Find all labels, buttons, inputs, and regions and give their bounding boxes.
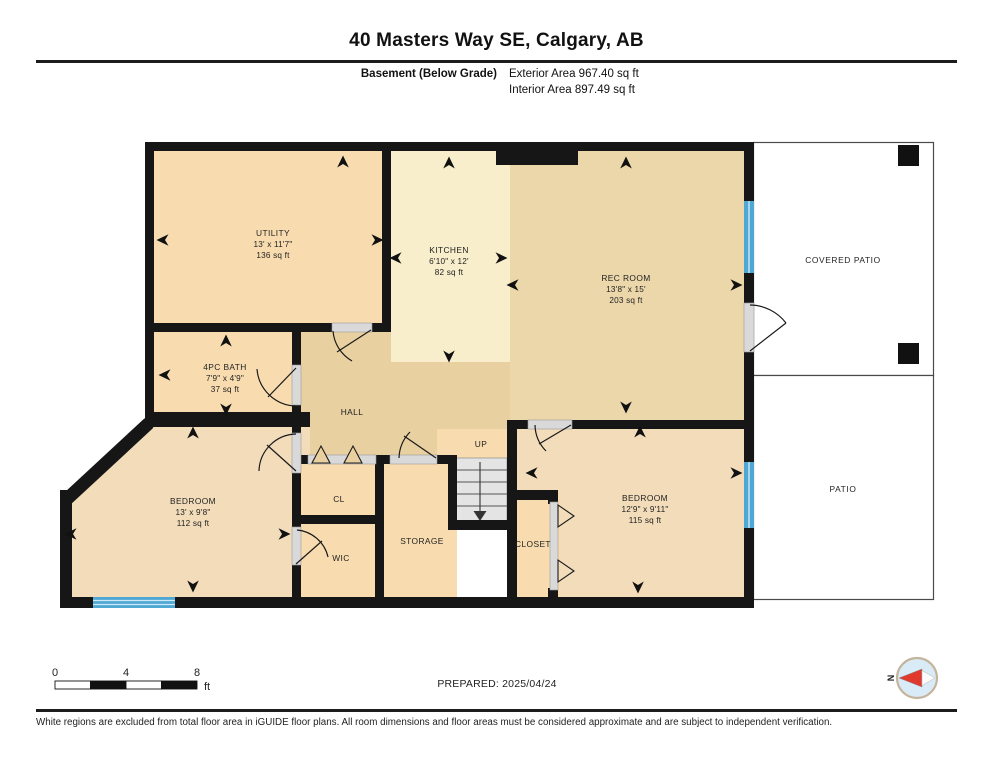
room-utility: UTILITY 13' x 11'7" 136 sq ft	[253, 228, 292, 260]
compass-north-label: N	[886, 675, 896, 682]
svg-text:37 sq ft: 37 sq ft	[211, 385, 240, 394]
footer-disclaimer: White regions are excluded from total fl…	[36, 717, 966, 728]
scale-unit: ft	[204, 681, 210, 693]
patio-post	[898, 343, 919, 364]
svg-text:13' x 9'8": 13' x 9'8"	[176, 508, 211, 517]
label-hall: HALL	[341, 407, 364, 417]
covered-patio-region	[754, 143, 934, 600]
svg-text:115 sq ft: 115 sq ft	[629, 516, 662, 525]
label-storage: STORAGE	[400, 536, 444, 546]
svg-text:UTILITY: UTILITY	[256, 228, 290, 238]
label-patio: PATIO	[830, 484, 857, 494]
prepared-date: PREPARED: 2025/04/24	[437, 678, 556, 690]
staircase	[452, 458, 507, 522]
room-kitchen: KITCHEN 6'10" x 12' 82 sq ft	[429, 245, 469, 277]
compass-icon: N	[886, 658, 937, 698]
svg-text:BEDROOM: BEDROOM	[622, 493, 668, 503]
label-closet: CLOSET	[515, 539, 551, 549]
footer-divider	[36, 709, 957, 712]
label-cl: CL	[333, 494, 345, 504]
svg-text:13' x 11'7": 13' x 11'7"	[253, 240, 292, 249]
svg-text:82 sq ft: 82 sq ft	[435, 268, 464, 277]
scale-bar: 0 4 8 ft	[52, 667, 210, 693]
svg-text:7'9" x 4'9": 7'9" x 4'9"	[206, 374, 244, 383]
room-bedroom-left: BEDROOM 13' x 9'8" 112 sq ft	[170, 496, 216, 528]
svg-text:13'8" x 15': 13'8" x 15'	[606, 285, 646, 294]
patio-post	[898, 145, 919, 166]
scale-tick-4: 4	[123, 667, 129, 679]
svg-text:KITCHEN: KITCHEN	[429, 245, 469, 255]
svg-text:112 sq ft: 112 sq ft	[177, 519, 210, 528]
svg-text:6'10" x 12': 6'10" x 12'	[429, 257, 469, 266]
svg-text:BEDROOM: BEDROOM	[170, 496, 216, 506]
window	[93, 597, 175, 608]
svg-text:136 sq ft: 136 sq ft	[256, 251, 290, 260]
svg-text:REC ROOM: REC ROOM	[601, 273, 650, 283]
svg-text:203 sq ft: 203 sq ft	[609, 296, 643, 305]
label-covered-patio: COVERED PATIO	[805, 255, 880, 265]
floor-plan-page: 40 Masters Way SE, Calgary, AB Basement …	[0, 0, 993, 768]
svg-text:4PC BATH: 4PC BATH	[203, 362, 247, 372]
scale-tick-0: 0	[52, 667, 58, 679]
label-wic: WIC	[332, 553, 349, 563]
scale-tick-8: 8	[194, 667, 200, 679]
floor-plan-drawing: UTILITY 13' x 11'7" 136 sq ft KITCHEN 6'…	[0, 0, 993, 768]
svg-text:12'9" x 9'11": 12'9" x 9'11"	[622, 505, 669, 514]
label-up: UP	[475, 439, 487, 449]
